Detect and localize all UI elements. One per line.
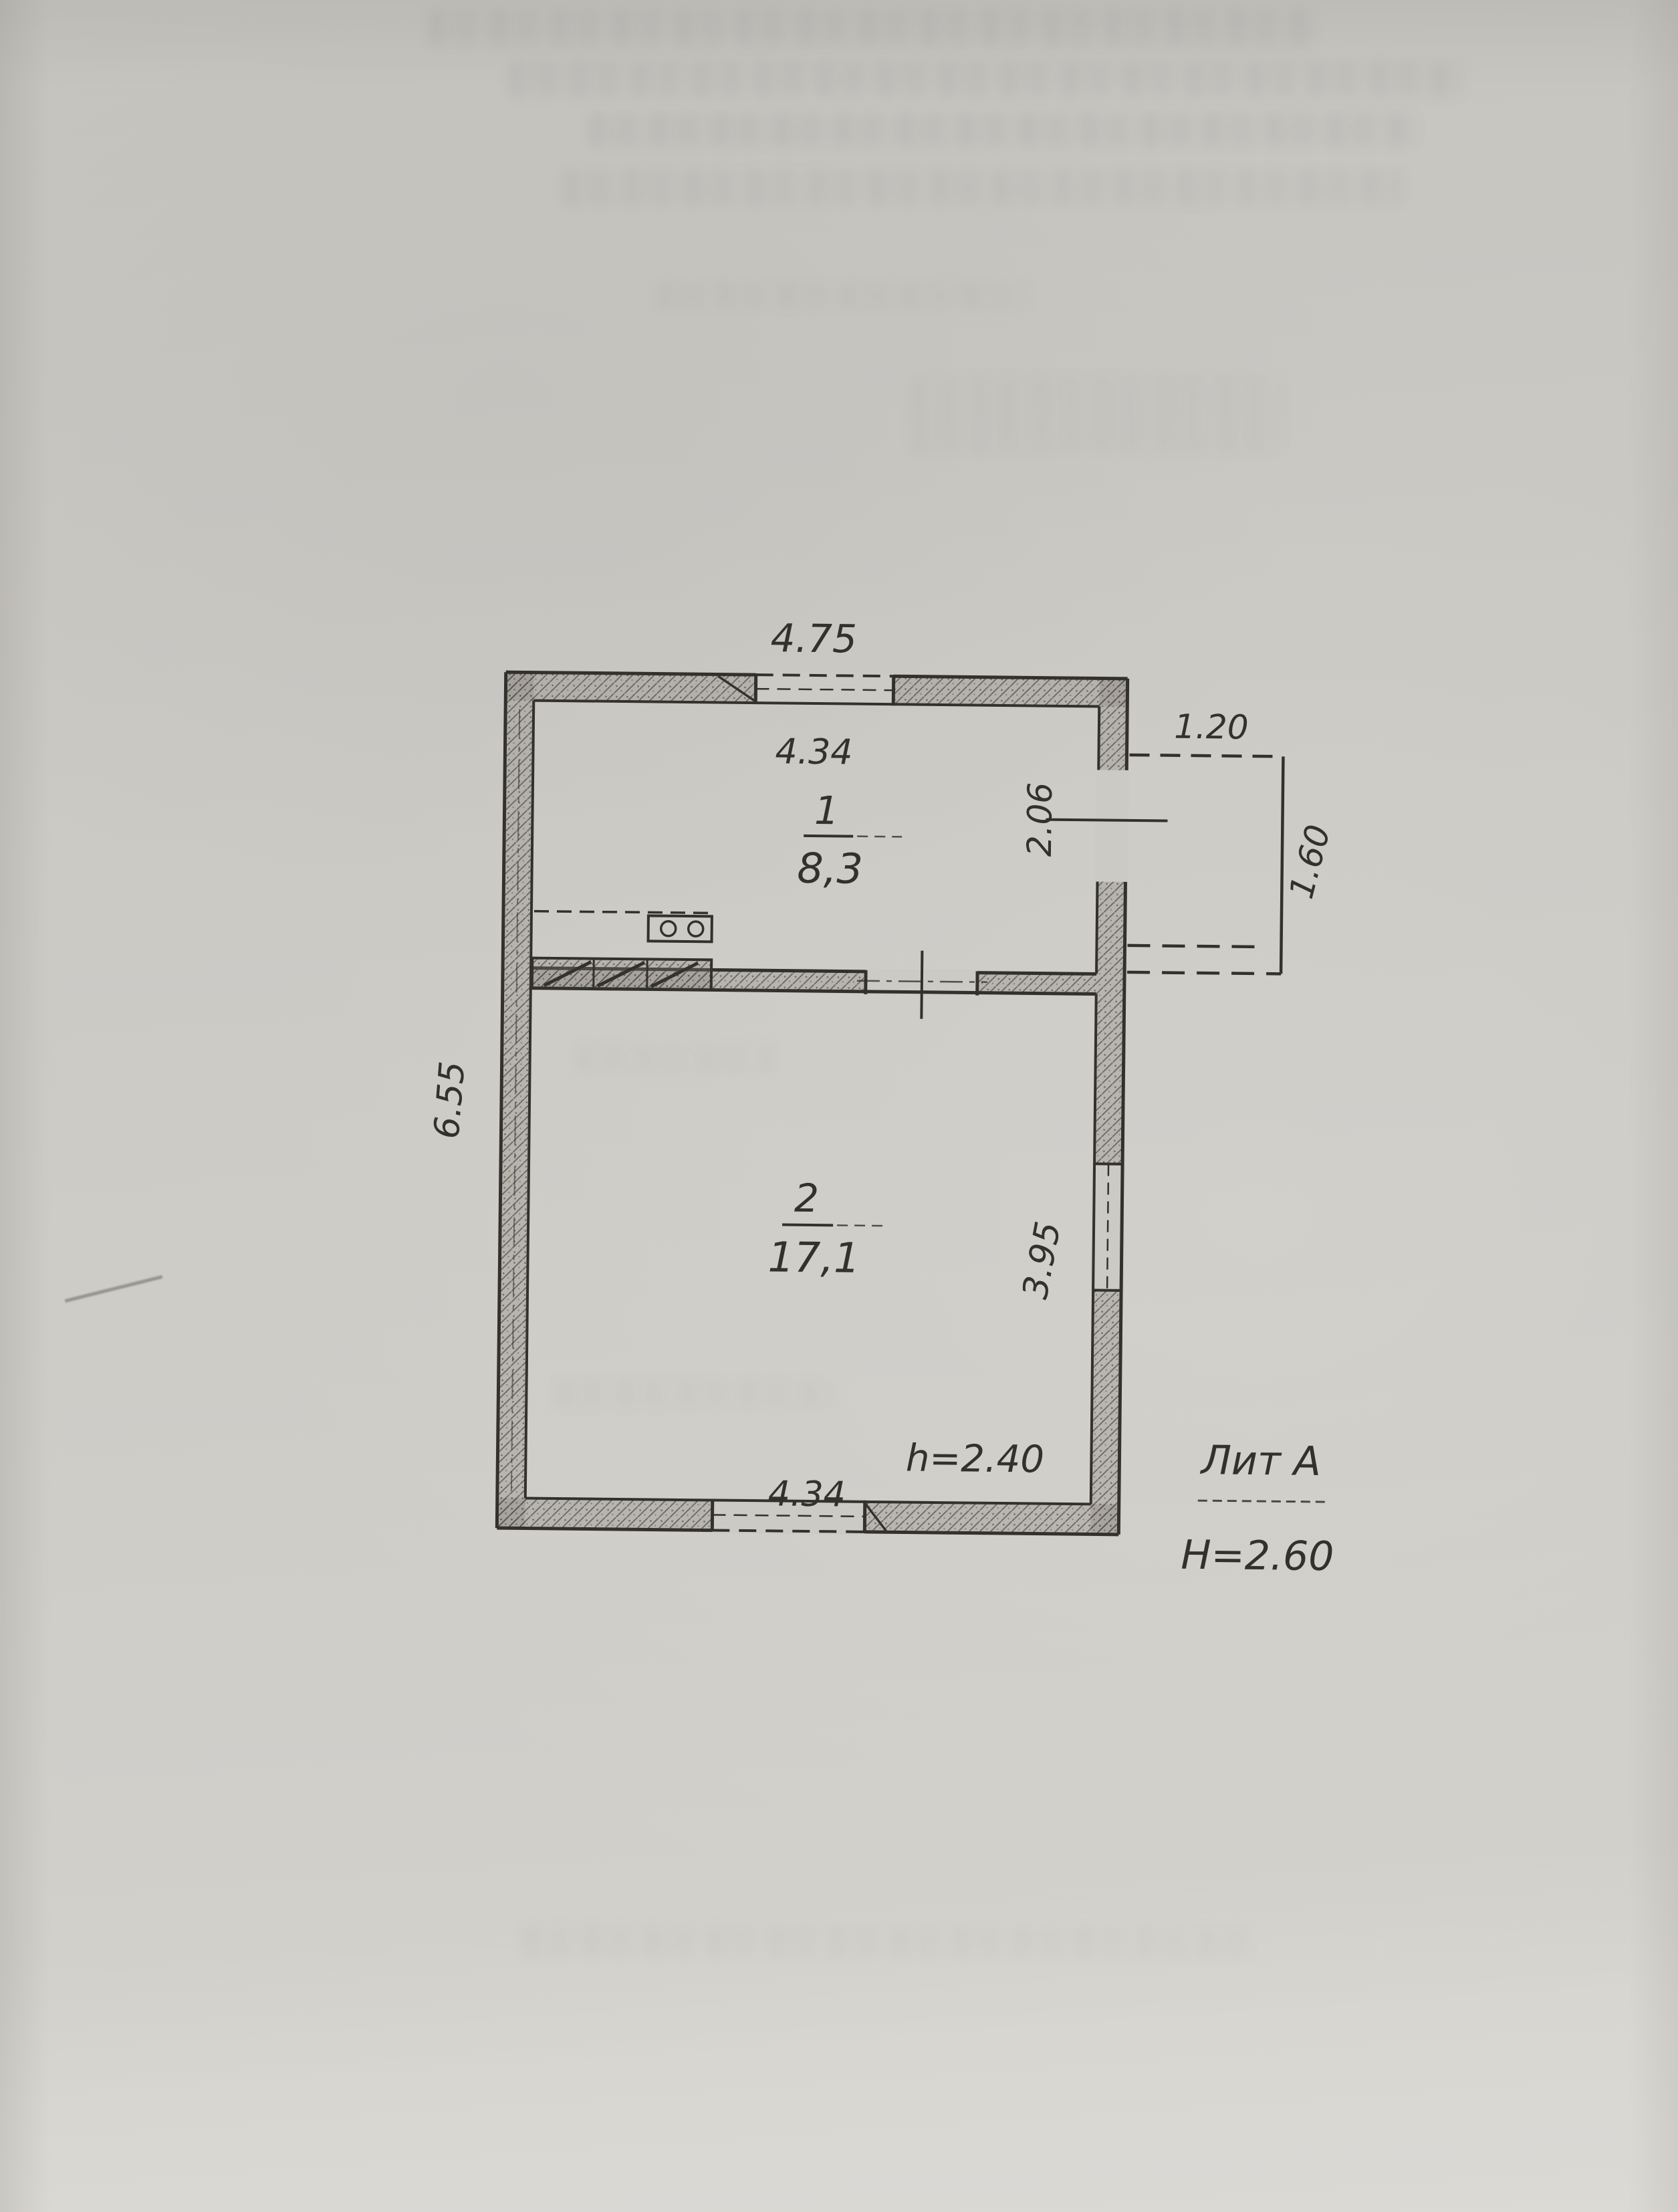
dim-room2-width: 4.34 [768, 1474, 846, 1515]
dim-room2-depth: 3.95 [1015, 1218, 1069, 1302]
porch-outline [1127, 755, 1283, 974]
interior-door-tick [921, 951, 922, 1019]
room2-area: 17,1 [767, 1232, 860, 1282]
ceiling-height-label: h=2.40 [906, 1436, 1045, 1481]
room1-number: 1 [814, 788, 840, 833]
porch-door-tick [1046, 820, 1167, 821]
scanned-sheet: 4.75 4.34 2.06 1.20 1.60 6.55 3.95 4.34 … [0, 0, 1678, 2212]
building-height-label: H=2.60 [1181, 1532, 1334, 1580]
dim-porch-depth: 1.60 [1282, 820, 1338, 902]
wall-openings [711, 672, 1130, 1537]
dim-room1-width: 4.34 [775, 732, 852, 772]
dim-top-exterior-width: 4.75 [770, 615, 857, 661]
dim-porch-width: 1.20 [1174, 707, 1249, 747]
dimension-labels: 4.75 4.34 2.06 1.20 1.60 6.55 3.95 4.34 [423, 612, 1340, 1520]
litera-label: Лит А [1199, 1437, 1321, 1485]
dim-left-exterior-height: 6.55 [427, 1060, 473, 1140]
stove-symbol [532, 911, 712, 990]
floor-plan: 4.75 4.34 2.06 1.20 1.60 6.55 3.95 4.34 … [0, 0, 1678, 2212]
room2-number: 2 [794, 1176, 820, 1221]
room1-area: 8,3 [797, 844, 863, 893]
room-labels: 1 8,3 2 17,1 [767, 787, 903, 1283]
dim-room1-depth: 2.06 [1020, 782, 1060, 857]
